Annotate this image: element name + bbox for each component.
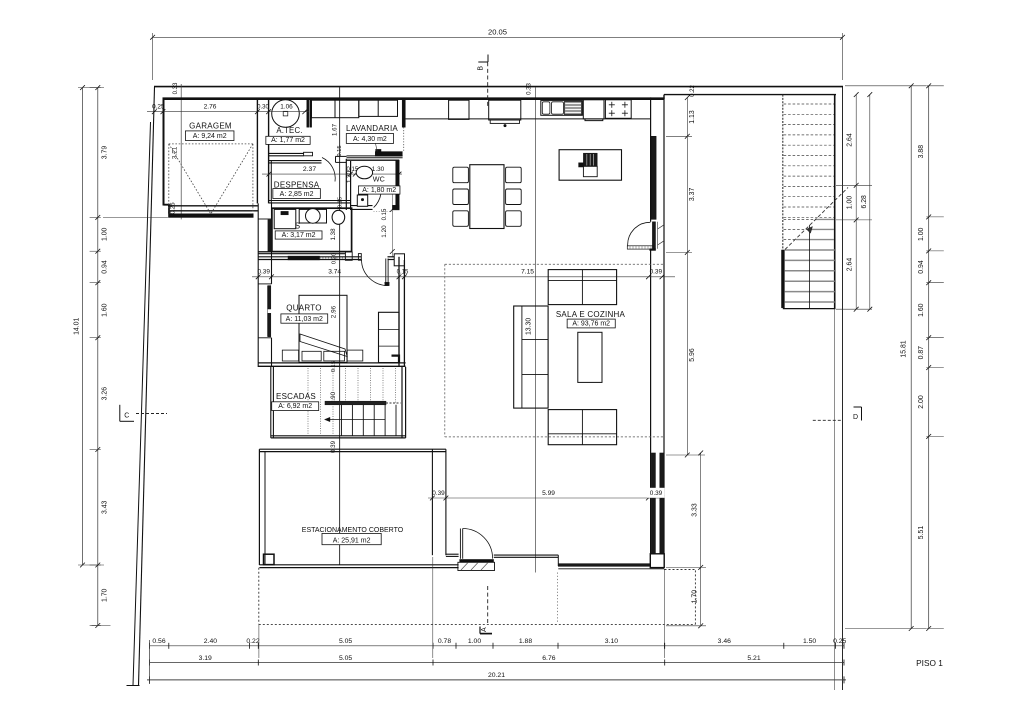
svg-text:1.88: 1.88 [519,638,532,645]
svg-text:20.05: 20.05 [488,28,507,37]
svg-text:SALA E COZINHA: SALA E COZINHA [556,310,626,319]
svg-text:1.06: 1.06 [280,104,293,111]
svg-text:D: D [853,414,858,421]
svg-text:1.00: 1.00 [918,227,925,241]
svg-text:0.39: 0.39 [650,490,663,497]
svg-text:S: S [295,222,301,231]
svg-text:0.30: 0.30 [257,105,269,111]
svg-text:1.20: 1.20 [346,170,353,183]
svg-text:1.67: 1.67 [331,123,338,136]
svg-text:A: 25,91 m2: A: 25,91 m2 [333,537,371,544]
svg-text:A: 93,76 m2: A: 93,76 m2 [572,321,610,328]
svg-text:2.37: 2.37 [303,166,316,173]
svg-text:3.26: 3.26 [102,387,109,401]
svg-text:3.79: 3.79 [102,146,109,160]
svg-text:B: B [477,66,484,71]
svg-text:5.21: 5.21 [747,655,760,662]
svg-text:5.05: 5.05 [339,655,352,662]
svg-text:0.87: 0.87 [918,346,925,360]
svg-text:A: 9,24 m2: A: 9,24 m2 [193,133,227,140]
svg-text:0.94: 0.94 [918,260,925,274]
svg-text:DESPENSA: DESPENSA [274,180,320,189]
svg-text:1.70: 1.70 [102,588,109,602]
svg-text:1.00: 1.00 [102,227,109,241]
svg-text:0.15: 0.15 [338,197,344,208]
svg-text:6.28: 6.28 [861,195,868,209]
svg-text:A: A [481,627,488,632]
svg-text:ESTACIONAMENTO COBERTO: ESTACIONAMENTO COBERTO [302,527,404,534]
svg-text:LAVANDARIA: LAVANDARIA [346,124,398,133]
svg-text:5.96: 5.96 [689,348,696,362]
svg-text:PISO 1: PISO 1 [916,658,943,668]
svg-text:3.88: 3.88 [918,145,925,159]
svg-text:3.19: 3.19 [199,655,212,662]
svg-text:0.33: 0.33 [527,83,533,95]
svg-text:1.00: 1.00 [847,196,854,210]
svg-text:1.30: 1.30 [372,166,385,173]
svg-text:2.40: 2.40 [204,638,217,645]
svg-text:2.96: 2.96 [331,305,338,318]
svg-text:GARAGEM: GARAGEM [189,122,232,131]
svg-text:5.99: 5.99 [542,490,555,497]
svg-text:1.50: 1.50 [803,638,816,645]
svg-text:1.20: 1.20 [381,225,388,238]
svg-text:0.78: 0.78 [438,638,451,645]
svg-text:A.TEC.: A.TEC. [276,126,302,135]
svg-text:0.94: 0.94 [102,260,109,274]
svg-text:0.39: 0.39 [330,440,337,453]
svg-text:QUARTO: QUARTO [286,303,321,312]
svg-text:C: C [124,412,129,419]
svg-text:0.22: 0.22 [690,85,696,97]
svg-text:1.38: 1.38 [330,228,337,241]
svg-text:0.39: 0.39 [257,269,270,276]
svg-text:A: 4,30 m2: A: 4,30 m2 [353,136,387,143]
svg-text:0.22: 0.22 [246,638,259,645]
svg-text:ESCADAS: ESCADAS [276,392,316,401]
svg-text:2.64: 2.64 [847,133,854,147]
svg-text:0.15: 0.15 [331,361,337,372]
svg-text:A: 6,92 m2: A: 6,92 m2 [278,403,312,410]
svg-text:1.70: 1.70 [691,590,698,604]
svg-text:2.64: 2.64 [847,258,854,272]
svg-text:0.39: 0.39 [432,490,445,497]
svg-text:3.43: 3.43 [102,500,109,514]
svg-text:0.15: 0.15 [382,208,388,220]
svg-text:3.74: 3.74 [328,269,341,276]
svg-text:0.15: 0.15 [397,270,409,276]
svg-text:3.37: 3.37 [689,188,696,202]
svg-text:6.76: 6.76 [542,655,555,662]
svg-text:0.25: 0.25 [152,104,165,111]
svg-text:20.21: 20.21 [488,672,505,679]
svg-text:A: 11,03 m2: A: 11,03 m2 [286,316,323,323]
svg-text:1.60: 1.60 [918,303,925,317]
svg-text:0.20: 0.20 [332,253,338,264]
svg-text:2.00: 2.00 [918,395,925,409]
svg-text:0.15: 0.15 [337,145,343,156]
svg-text:3.46: 3.46 [718,638,731,645]
svg-text:15.81: 15.81 [901,340,908,357]
svg-text:0.25: 0.25 [833,638,846,645]
svg-text:A: 3,17 m2: A: 3,17 m2 [282,232,316,239]
svg-text:2.76: 2.76 [204,104,217,111]
svg-text:3.10: 3.10 [605,638,618,645]
svg-text:1.13: 1.13 [689,110,696,124]
svg-text:3.21: 3.21 [171,146,178,159]
svg-text:14.01: 14.01 [74,318,81,335]
svg-text:A: 1,77 m2: A: 1,77 m2 [271,137,305,144]
svg-text:0.33: 0.33 [173,82,179,94]
svg-text:1.60: 1.60 [102,303,109,317]
svg-text:A: 1,80 m2: A: 1,80 m2 [362,187,396,194]
svg-text:0.39: 0.39 [650,269,663,276]
svg-text:0.25: 0.25 [171,202,177,214]
svg-text:WC: WC [373,174,385,183]
svg-text:13.30: 13.30 [526,318,533,335]
svg-text:5.51: 5.51 [918,526,925,540]
svg-text:1.00: 1.00 [468,638,481,645]
svg-text:0.56: 0.56 [152,638,165,645]
svg-text:A: 2,85 m2: A: 2,85 m2 [280,191,314,198]
svg-text:3.33: 3.33 [691,503,698,517]
svg-text:7.15: 7.15 [521,269,534,276]
svg-text:5.05: 5.05 [339,638,352,645]
